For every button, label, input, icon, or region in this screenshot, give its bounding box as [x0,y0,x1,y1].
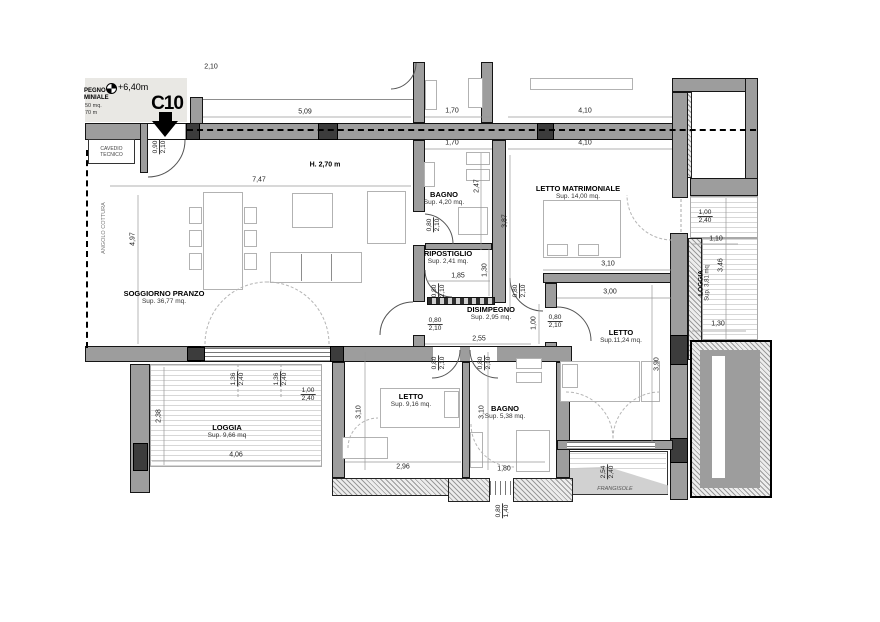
dim-width: 0,80 [426,218,434,233]
dim-height: 1,40 [504,504,511,519]
entrance-arrow-head-icon [152,121,178,137]
room-name: LETTO [391,392,431,401]
dim: 7,47 [252,177,266,184]
cavedio-line: TECNICO [100,152,123,158]
door-arc-disimpegno [380,302,413,335]
dim-height: 2,10 [521,284,528,299]
level-symbol-icon [106,83,117,94]
dim: 1,70 [445,108,459,115]
dim-width: 0,80 [548,314,563,322]
dim: 1,80 [497,466,511,473]
window-swing-letto1-right [613,392,660,439]
room-name: BAGNO [485,404,525,413]
dim-width: 1,36 [230,372,238,387]
dim-width: 1,36 [273,372,281,387]
dim-window-bagno2: 0,801,40 [495,504,511,519]
room-label-letto-matrimoniale: LETTO MATRIMONIALE Sup. 14,00 mq. [536,184,620,200]
room-area: Sup. 36,77 mq. [124,298,205,305]
room-area: Sup. 5,38 mq. [485,413,525,420]
dim: 3,90 [654,357,661,371]
frangisole-note: FRANGISOLE [597,486,632,492]
dim: 2,96 [396,464,410,471]
dim: 1,85 [451,273,465,280]
dim-height: 2,40 [609,465,616,480]
dim: 4,06 [229,452,243,459]
window-swing-letto-matr [627,195,672,240]
dim-door-letto-matr: 0,802,10 [512,284,528,299]
unit-note-line: 70 m [85,110,97,116]
dim: 1,10 [709,236,723,243]
dim: 4,10 [578,140,592,147]
dim-door-bagno2: 0,802,10 [477,356,493,371]
dim-width: 0,90 [152,140,160,155]
dim-door-entrance: 0,902,10 [152,140,168,155]
angolo-cottura-note: ANGOLO COTTURA [101,202,107,254]
dim-door-letto2: 0,802,10 [431,356,447,371]
room-area: Sup. 3,81 mq [705,265,711,301]
unit-note-line: MINIALE [84,95,109,101]
window-swing-bagno2 [471,424,514,467]
room-label-loggia2: LOGGIA Sup. 3,81 mq [698,265,711,301]
room-label-letto1: LETTO Sup.11,24 mq. [600,328,642,344]
room-name: BAGNO [424,190,464,199]
dim-height: 2,40 [698,218,713,225]
dim-window-loggia1-c: 1,002,40 [301,387,316,403]
room-label-letto2: LETTO Sup. 9,16 mq. [391,392,431,408]
room-name: SOGGIORNO PRANZO [124,289,205,298]
room-area: Sup. 2,41 mq. [424,258,472,265]
dim-window-loggia1-b: 1,362,40 [273,372,289,387]
dim: 3,10 [601,261,615,268]
dim-height: 2,10 [435,218,442,233]
window-swing-soggiorno-left [205,282,267,344]
dim-door-ripostiglio: 0,802,10 [431,284,447,299]
unit-note-line: PEGNO [84,88,106,94]
dim: 2,38 [156,409,163,423]
dim-door-bagno1: 0,802,10 [426,218,442,233]
dim-width: 1,00 [698,209,713,217]
room-area: Sup. 9,66 mq [208,432,247,439]
dim-width: 0,80 [512,284,520,299]
dim-height: 2,10 [440,284,447,299]
dim-width: 2,54 [600,465,608,480]
room-label-bagno2: BAGNO Sup. 5,38 mq. [485,404,525,420]
dim: 2,55 [472,336,486,343]
room-label-bagno1: BAGNO Sup. 4,20 mq. [424,190,464,206]
dim-height: 2,10 [161,140,168,155]
window-swing-letto1-left [566,392,613,439]
room-area: Sup. 9,16 mq. [391,401,431,408]
dim-height: 2,40 [239,372,246,387]
room-label-soggiorno: SOGGIORNO PRANZO Sup. 36,77 mq. [124,289,205,305]
room-area: Sup. 14,00 mq. [536,193,620,200]
dim-door-letto1: 0,802,10 [548,314,563,330]
room-name: LETTO [600,328,642,337]
cavedio-tecnico-box: CAVEDIO TECNICO [88,139,135,164]
dim: 2,10 [204,64,218,71]
dim: 3,00 [603,289,617,296]
room-label-ripostiglio: RIPOSTIGLIO Sup. 2,41 mq. [424,249,472,265]
dim-width: 0,80 [431,284,439,299]
dim: 4,97 [130,232,137,246]
room-name: DISIMPEGNO [467,305,515,314]
dim: 3,10 [479,405,486,419]
window-swing-soggiorno-right [267,282,329,344]
room-name: RIPOSTIGLIO [424,249,472,258]
dim: 1,00 [531,316,538,330]
unit-note-line: 50 mq. [85,103,102,109]
room-name: LETTO MATRIMONIALE [536,184,620,193]
room-area: Sup.11,24 mq. [600,337,642,344]
dim-height: 2,40 [301,396,316,403]
dim: 4,10 [578,108,592,115]
room-label-disimpegno: DISIMPEGNO Sup. 2,95 mq. [467,305,515,321]
dim: 3,46 [718,258,725,272]
dim: 1,30 [482,263,489,277]
dim: 1,30 [711,321,725,328]
dim-height: 2,10 [548,323,563,330]
dim: 5,09 [298,109,312,116]
room-name: LOGGIA [698,265,705,301]
dim-height: 2,10 [428,326,443,333]
dim-height: 2,10 [486,356,493,371]
dim-window-frangisole: 2,542,40 [600,465,616,480]
dim-width: 0,80 [428,317,443,325]
room-area: Sup. 2,95 mq. [467,314,515,321]
dim-window-loggia2: 1,002,40 [698,209,713,225]
dim-width: 1,00 [301,387,316,395]
dim: 3,10 [356,405,363,419]
dim: 3,87 [502,214,509,228]
dim-window-loggia1-a: 1,362,40 [230,372,246,387]
ceiling-height-note: H. 2,70 m [310,162,341,169]
dim-door-disimpegno: 0,802,10 [428,317,443,333]
dim: 2,47 [474,179,481,193]
room-area: Sup. 4,20 mq. [424,199,464,206]
room-label-loggia1: LOGGIA Sup. 9,66 mq [208,423,247,439]
window-swing-letto2 [348,418,378,448]
dim-width: 0,80 [431,356,439,371]
dimension-lines [110,117,746,470]
dim-width: 0,80 [495,504,503,519]
entrance-arrow-icon [159,112,172,121]
dim: 1,70 [445,140,459,147]
level-value: +6,40m [118,82,148,92]
room-name: LOGGIA [208,423,247,432]
door-arc-upper-unit [391,63,416,89]
dim-width: 0,80 [477,356,485,371]
dim-height: 2,10 [440,356,447,371]
dim-height: 2,40 [282,372,289,387]
floor-plan: +6,40m PEGNO MINIALE 50 mq. 70 m C10 CAV… [0,0,880,622]
